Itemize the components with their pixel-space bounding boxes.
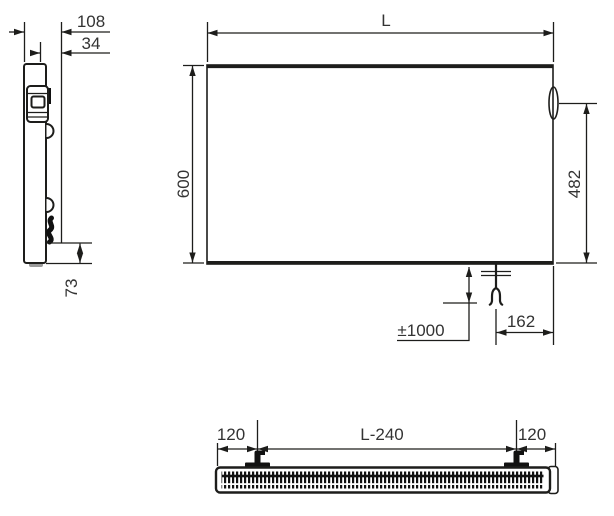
dim-600: 600 [174,66,204,264]
plug-icon [481,264,511,305]
dim-label-600: 600 [174,170,193,198]
dim-34: 34 [32,34,110,62]
dim-73: 73 [62,244,81,298]
wall-hook-lower-icon [47,198,54,212]
dim-162: 162 [496,266,554,345]
dim-label-34: 34 [82,34,101,53]
side-view: 73 108 34 [9,12,110,297]
bottom-view: 120 L-240 120 [216,420,558,494]
dim-L-240: L-240 [258,425,516,449]
dim-120-left: 120 [217,425,257,449]
power-cable-side [49,218,52,242]
dim-L: L [208,11,554,62]
front-view: L 600 482 ±1000 [174,11,597,345]
dim-label-L-240: L-240 [360,425,403,444]
dim-120-right: 120 [517,425,555,449]
dim-label-cable-length: ±1000 [397,321,444,340]
dim-label-73: 73 [62,279,81,298]
convector-grille [222,472,544,489]
dim-label-162: 162 [507,312,535,331]
dim-cable-length: ±1000 [397,267,477,341]
dim-label-L: L [381,11,390,30]
mounting-bracket-right-icon [504,451,529,469]
dim-label-108: 108 [77,12,105,31]
dim-label-120-left: 120 [217,425,245,444]
control-display [32,97,45,108]
mounting-bracket-left-icon [245,451,270,469]
drawing-svg: 73 108 34 L [0,0,614,516]
wall-hook-upper-icon [47,124,54,138]
dim-label-120-right: 120 [518,425,546,444]
radiator-panel-front [207,65,553,264]
dim-label-482: 482 [565,170,584,198]
radiator-dimension-drawing: 73 108 34 L [0,0,614,516]
dim-482: 482 [556,104,597,264]
